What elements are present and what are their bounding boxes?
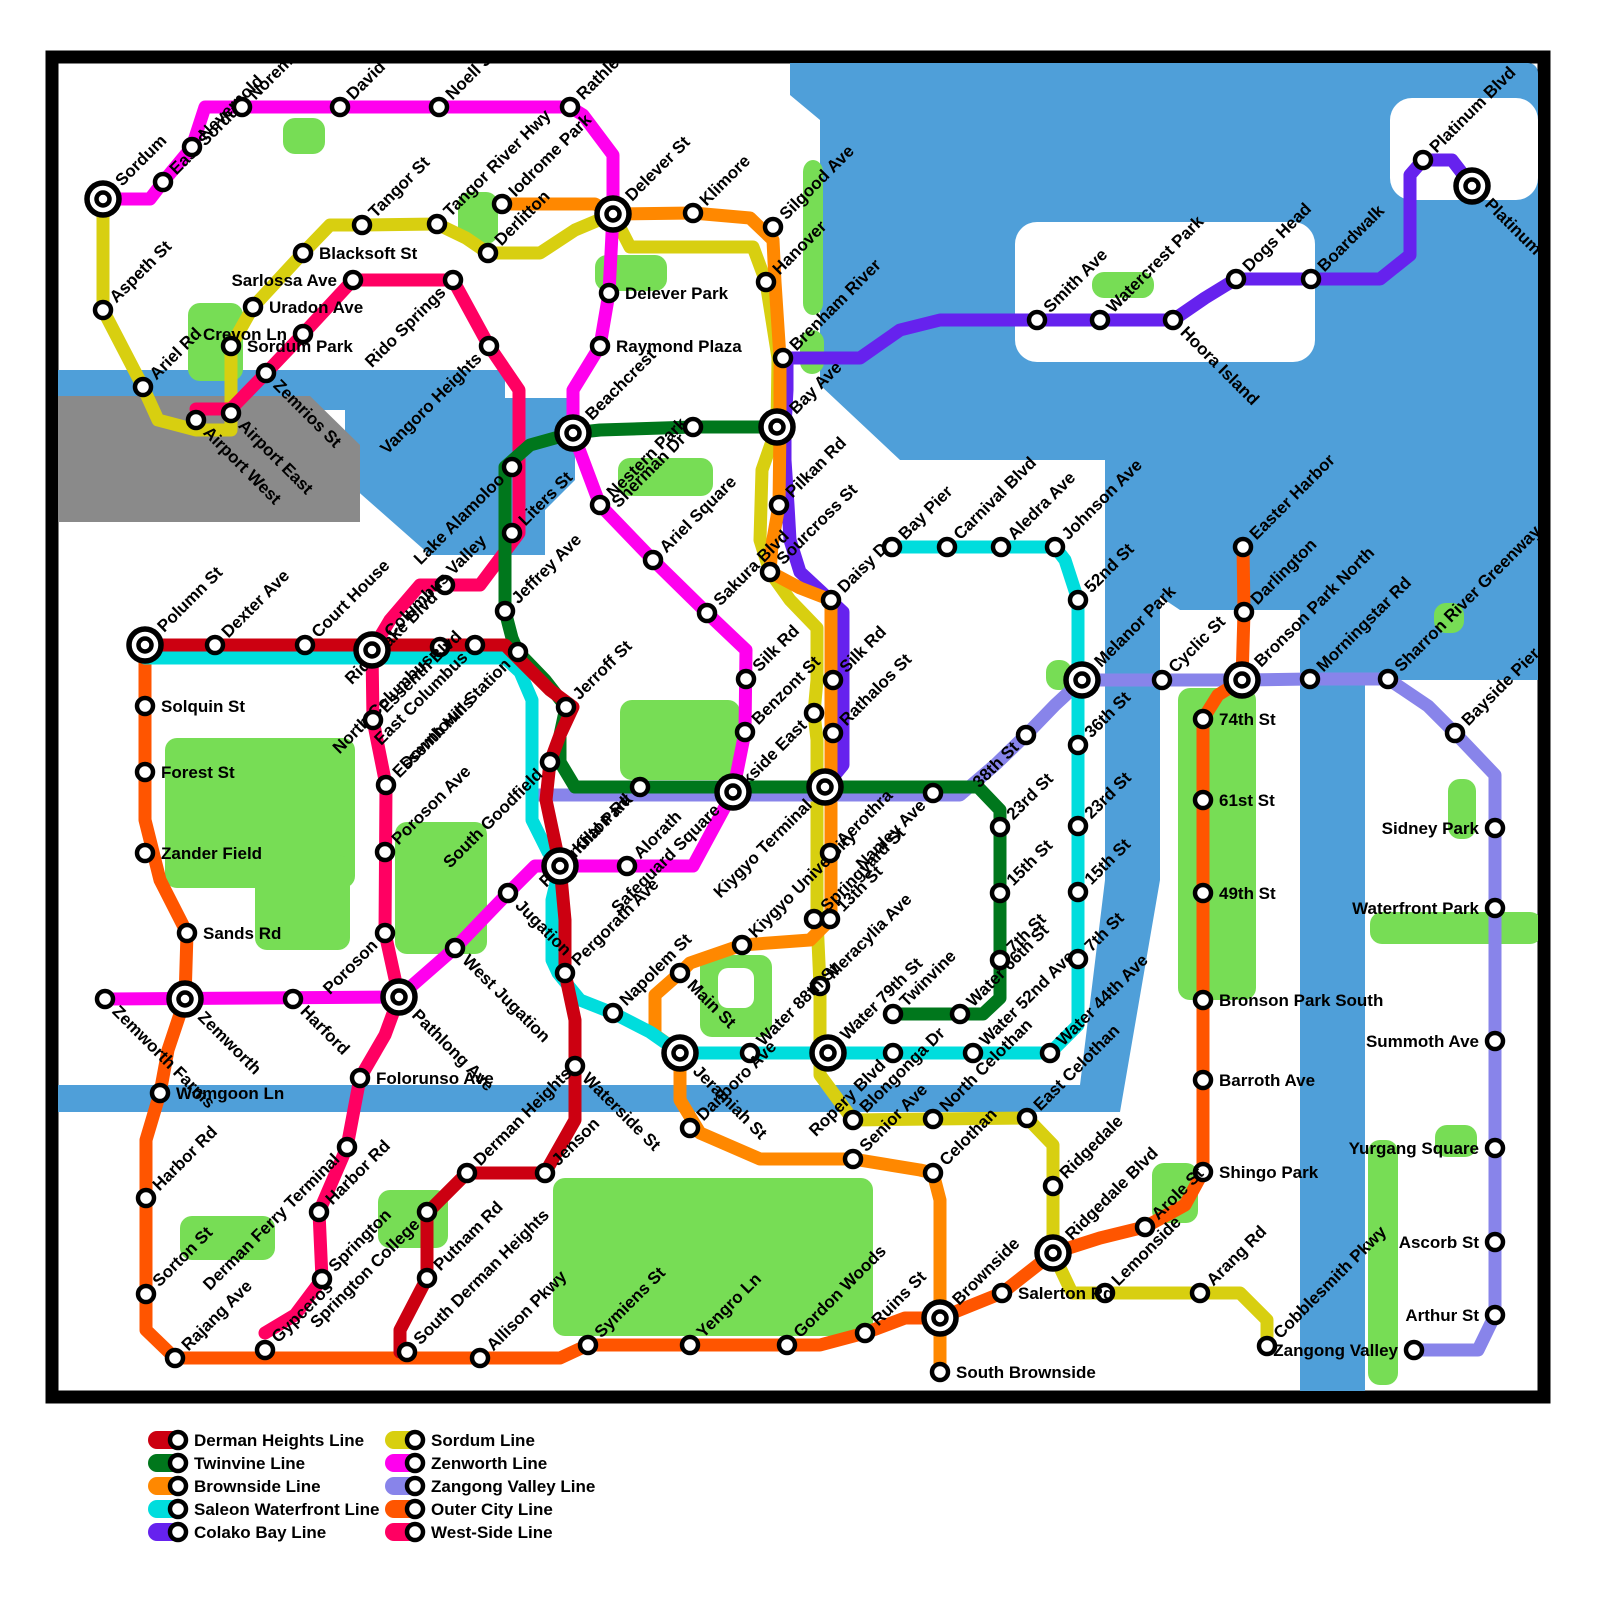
station-dot: [1487, 1140, 1503, 1156]
station-dot: [619, 858, 635, 874]
station-forest-st[interactable]: Forest St: [137, 763, 235, 782]
station-dot: [1154, 672, 1170, 688]
station-dot: [1019, 1110, 1035, 1126]
station-dot: [378, 777, 394, 793]
legend-item-colako-bay-line[interactable]: Colako Bay Line: [148, 1523, 326, 1542]
station-dot: [1047, 539, 1063, 555]
station-dot: [925, 1111, 941, 1127]
station-dot: [806, 911, 822, 927]
legend-label: Twinvine Line: [194, 1454, 305, 1473]
station-dot: [607, 208, 620, 221]
station-label: Forest St: [161, 763, 235, 782]
legend-station-icon: [170, 1501, 186, 1517]
station-dot: [823, 592, 839, 608]
station-dot: [139, 639, 152, 652]
station-dot: [481, 338, 497, 354]
legend-station-icon: [170, 1432, 186, 1448]
station-dot: [562, 99, 578, 115]
station-dot: [1070, 818, 1086, 834]
station-dot: [399, 1344, 415, 1360]
station-dot: [939, 539, 955, 555]
station-dot: [1192, 1285, 1208, 1301]
station-dot: [592, 338, 608, 354]
station-dot: [1195, 1072, 1211, 1088]
legend-station-icon: [170, 1455, 186, 1471]
station-dot: [1076, 674, 1089, 687]
station-dot: [1259, 1338, 1275, 1354]
station-dot: [152, 1085, 168, 1101]
station-dot: [234, 99, 250, 115]
station-label: Delever Park: [625, 284, 729, 303]
station-dot: [257, 1342, 273, 1358]
station-dot: [1487, 900, 1503, 916]
station-dot: [1195, 711, 1211, 727]
station-dot: [601, 285, 617, 301]
station-dot: [884, 539, 900, 555]
station-dot: [245, 299, 261, 315]
station-label: Sands Rd: [203, 924, 281, 943]
station-dot: [645, 552, 661, 568]
station-dot: [352, 1070, 368, 1086]
station-arthur-st[interactable]: Arthur St: [1405, 1306, 1503, 1325]
station-dot: [155, 174, 171, 190]
station-dot: [672, 965, 688, 981]
station-dot: [137, 845, 153, 861]
station-dot: [137, 698, 153, 714]
station-dot: [845, 1151, 861, 1167]
station-dot: [554, 860, 567, 873]
station-dot: [537, 1165, 553, 1181]
legend-station-icon: [407, 1432, 423, 1448]
station-label: 61st St: [1219, 791, 1275, 810]
station-dot: [822, 1047, 835, 1060]
station-dot: [993, 539, 1009, 555]
legend-station-icon: [407, 1455, 423, 1471]
station-dot: [558, 699, 574, 715]
station-dot: [727, 786, 740, 799]
station-dot: [431, 99, 447, 115]
legend: Derman Heights LineTwinvine LineBrownsid…: [148, 1431, 595, 1542]
station-dot: [825, 725, 841, 741]
legend-label: West-Side Line: [431, 1523, 553, 1542]
station-49th-st[interactable]: 49th St: [1195, 884, 1276, 903]
station-dot: [1302, 671, 1318, 687]
station-label: Waterfront Park: [1352, 899, 1479, 918]
station-dot: [1466, 180, 1479, 193]
station-dot: [557, 965, 573, 981]
station-dot: [605, 1005, 621, 1021]
station-label: Crevon Ln: [203, 325, 287, 344]
legend-item-derman-heights-line[interactable]: Derman Heights Line: [148, 1431, 364, 1450]
station-dot: [497, 603, 513, 619]
station-dot: [137, 764, 153, 780]
station-dot: [1447, 725, 1463, 741]
legend-item-zangong-valley-line[interactable]: Zangong Valley Line: [385, 1477, 595, 1496]
station-dot: [472, 1350, 488, 1366]
station-dot: [377, 925, 393, 941]
station-dot: [542, 754, 558, 770]
legend-item-outer-city-line[interactable]: Outer City Line: [385, 1500, 553, 1519]
station-label: 49th St: [1219, 884, 1276, 903]
station-dot: [1415, 152, 1431, 168]
legend-station-icon: [407, 1478, 423, 1494]
legend-label: Colako Bay Line: [194, 1523, 326, 1542]
station-dot: [1165, 312, 1181, 328]
legend-station-icon: [170, 1524, 186, 1540]
station-dot: [135, 379, 151, 395]
station-dot: [934, 1312, 947, 1325]
station-label: Sarlossa Ave: [231, 271, 337, 290]
station-dot: [771, 497, 787, 513]
station-dot: [179, 993, 192, 1006]
station-dot: [1236, 674, 1249, 687]
transit-map: SordumEast SordumNevernoldNorem StDavid …: [0, 0, 1600, 1600]
station-dot: [1045, 1178, 1061, 1194]
station-dot: [97, 991, 113, 1007]
station-dot: [366, 644, 379, 657]
legend-label: Zangong Valley Line: [431, 1477, 595, 1496]
station-label: Folorunso Ave: [376, 1069, 494, 1088]
station-label: Zangong Valley: [1273, 1341, 1398, 1360]
station-dot: [845, 1112, 861, 1128]
station-dot: [1487, 1234, 1503, 1250]
park-11: [620, 700, 740, 780]
station-label: Zander Field: [161, 844, 262, 863]
legend-item-west-side-line[interactable]: West-Side Line: [385, 1523, 553, 1542]
station-dot: [925, 785, 941, 801]
legend-label: Sordum Line: [431, 1431, 535, 1450]
legend-item-saleon-waterfront-line[interactable]: Saleon Waterfront Line: [148, 1500, 379, 1519]
legend-label: Derman Heights Line: [194, 1431, 364, 1450]
station-dot: [1236, 604, 1252, 620]
station-dot: [138, 1190, 154, 1206]
station-dot: [365, 712, 381, 728]
station-74th-st[interactable]: 74th St: [1195, 710, 1276, 729]
station-label: Blacksoft St: [319, 244, 418, 263]
station-dot: [685, 205, 701, 221]
station-label: Bronson Park South: [1219, 991, 1383, 1010]
station-dot: [1070, 737, 1086, 753]
legend-label: Zenworth Line: [431, 1454, 547, 1473]
station-dot: [311, 1204, 327, 1220]
station-61st-st[interactable]: 61st St: [1195, 791, 1275, 810]
station-dot: [314, 1271, 330, 1287]
station-label: Sidney Park: [1382, 819, 1480, 838]
station-dot: [258, 365, 274, 381]
legend-station-icon: [170, 1478, 186, 1494]
station-dot: [580, 1337, 596, 1353]
legend-station-icon: [407, 1524, 423, 1540]
station-dot: [758, 274, 774, 290]
station-dot: [1406, 1342, 1422, 1358]
legend-station-icon: [407, 1501, 423, 1517]
station-dot: [459, 1165, 475, 1181]
station-dot: [765, 219, 781, 235]
legend-item-brownside-line[interactable]: Brownside Line: [148, 1477, 321, 1496]
station-dot: [297, 637, 313, 653]
station-label: Raymond Plaza: [616, 337, 742, 356]
legend-label: Outer City Line: [431, 1500, 553, 1519]
station-label: Salerton Rd: [1018, 1284, 1113, 1303]
station-dot: [447, 940, 463, 956]
station-dot: [295, 245, 311, 261]
station-dot: [734, 937, 750, 953]
station-south-brownside[interactable]: South Brownside: [932, 1363, 1096, 1382]
park-14: [1178, 688, 1256, 1000]
legend-label: Brownside Line: [194, 1477, 321, 1496]
station-dot: [1070, 884, 1086, 900]
transit-map-svg: SordumEast SordumNevernoldNorem StDavid …: [0, 0, 1600, 1600]
station-dot: [674, 1047, 687, 1060]
station-dot: [1042, 1045, 1058, 1061]
station-dot: [95, 302, 111, 318]
station-dot: [345, 272, 361, 288]
station-dot: [1029, 312, 1045, 328]
station-dot: [467, 637, 483, 653]
station-label: Uradon Ave: [269, 298, 363, 317]
station-dot: [285, 991, 301, 1007]
legend-item-twinvine-line[interactable]: Twinvine Line: [148, 1454, 305, 1473]
station-dot: [737, 724, 753, 740]
station-label: Ascorb St: [1399, 1233, 1480, 1252]
park-0: [283, 118, 325, 154]
station-dot: [179, 925, 195, 941]
station-label: Shingo Park: [1219, 1163, 1319, 1182]
station-dot: [992, 885, 1008, 901]
station-dot: [822, 911, 838, 927]
station-dot: [504, 525, 520, 541]
station-dot: [819, 781, 832, 794]
station-bronson-park-south[interactable]: Bronson Park South: [1195, 991, 1383, 1010]
station-dot: [682, 1120, 698, 1136]
station-dot: [932, 1364, 948, 1380]
station-dot: [992, 952, 1008, 968]
station-label: Solquin St: [161, 697, 245, 716]
station-dot: [806, 705, 822, 721]
station-dot: [1487, 1307, 1503, 1323]
station-dot: [207, 637, 223, 653]
station-label: Barroth Ave: [1219, 1071, 1315, 1090]
station-dot: [339, 1139, 355, 1155]
station-dot: [97, 193, 110, 206]
station-dot: [952, 1006, 968, 1022]
station-dot: [779, 1337, 795, 1353]
station-dot: [419, 1204, 435, 1220]
station-dot: [762, 564, 778, 580]
station-label: 74th St: [1219, 710, 1276, 729]
station-dot: [504, 459, 520, 475]
station-dot: [857, 1325, 873, 1341]
station-dot: [771, 421, 784, 434]
station-dot: [1487, 1033, 1503, 1049]
station-dot: [354, 217, 370, 233]
station-dot: [429, 216, 445, 232]
station-dot: [480, 245, 496, 261]
station-dot: [1018, 727, 1034, 743]
station-dot: [1235, 539, 1251, 555]
station-dot: [138, 1286, 154, 1302]
station-dot: [1195, 885, 1211, 901]
station-dot: [885, 1006, 901, 1022]
station-dot: [994, 1285, 1010, 1301]
station-dot: [393, 991, 406, 1004]
station-dot: [775, 350, 791, 366]
station-dot: [445, 272, 461, 288]
station-dot: [992, 819, 1008, 835]
station-dot: [1303, 271, 1319, 287]
legend-label: Saleon Waterfront Line: [194, 1500, 379, 1519]
station-label: Yurgang Square: [1349, 1139, 1479, 1158]
station-dot: [1047, 1247, 1060, 1260]
station-dot: [682, 1337, 698, 1353]
station-label: Summoth Ave: [1366, 1032, 1479, 1051]
station-dot: [885, 1045, 901, 1061]
station-dot: [188, 412, 204, 428]
station-dot: [419, 1270, 435, 1286]
station-dot: [167, 1350, 183, 1366]
station-dot: [1195, 792, 1211, 808]
station-dot: [1070, 592, 1086, 608]
station-label: Arthur St: [1405, 1306, 1479, 1325]
legend-item-zenworth-line[interactable]: Zenworth Line: [385, 1454, 547, 1473]
station-dot: [1487, 820, 1503, 836]
station-dot: [223, 405, 239, 421]
station-dot: [925, 1165, 941, 1181]
station-dot: [592, 497, 608, 513]
station-dot: [699, 605, 715, 621]
station-dot: [1092, 312, 1108, 328]
station-dot: [1195, 992, 1211, 1008]
station-dot: [825, 672, 841, 688]
station-dot: [822, 845, 838, 861]
station-dot: [295, 326, 311, 342]
station-label: South Brownside: [956, 1363, 1096, 1382]
station-dot: [500, 885, 516, 901]
station-dot: [494, 196, 510, 212]
station-dot: [1228, 271, 1244, 287]
station-dot: [1380, 671, 1396, 687]
station-dot: [685, 419, 701, 435]
station-dot: [377, 844, 393, 860]
station-dot: [184, 139, 200, 155]
station-dot: [567, 427, 580, 440]
legend-item-sordum-line[interactable]: Sordum Line: [385, 1431, 535, 1450]
station-dot: [1070, 951, 1086, 967]
station-dot: [632, 779, 648, 795]
station-dot: [332, 99, 348, 115]
station-label: Womgoon Ln: [176, 1084, 284, 1103]
station-dot: [738, 671, 754, 687]
station-dot: [510, 644, 526, 660]
